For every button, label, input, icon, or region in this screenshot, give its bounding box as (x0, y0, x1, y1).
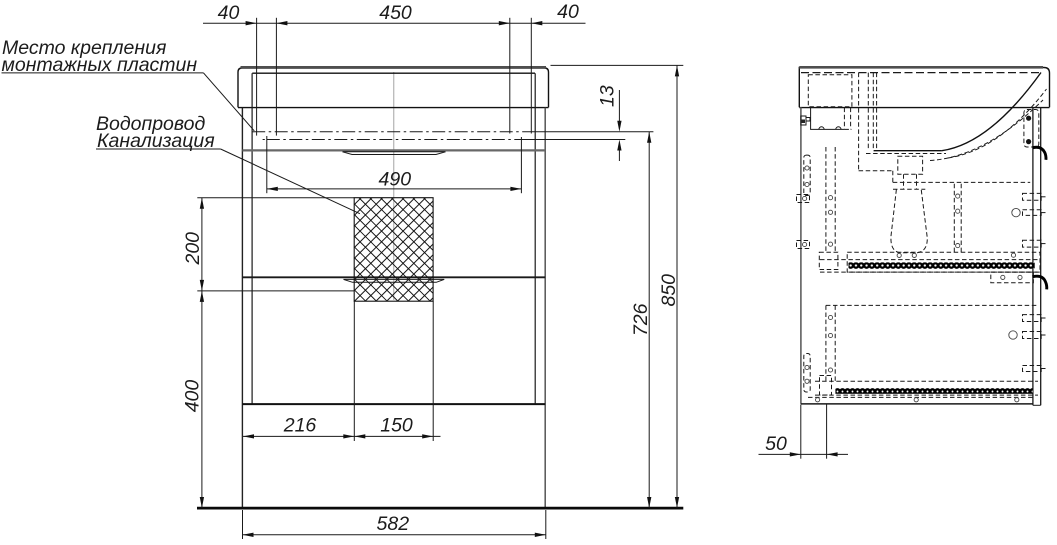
svg-text:50: 50 (765, 433, 787, 455)
svg-text:490: 490 (379, 168, 412, 190)
svg-text:40: 40 (557, 1, 579, 23)
svg-text:450: 450 (379, 2, 412, 24)
svg-text:850: 850 (658, 274, 680, 307)
svg-text:13: 13 (597, 85, 619, 107)
svg-text:726: 726 (630, 303, 652, 336)
svg-text:582: 582 (377, 513, 410, 535)
svg-text:216: 216 (283, 415, 317, 437)
svg-text:150: 150 (380, 415, 413, 437)
svg-text:400: 400 (182, 380, 204, 413)
svg-text:200: 200 (182, 232, 204, 266)
svg-text:40: 40 (218, 2, 240, 24)
